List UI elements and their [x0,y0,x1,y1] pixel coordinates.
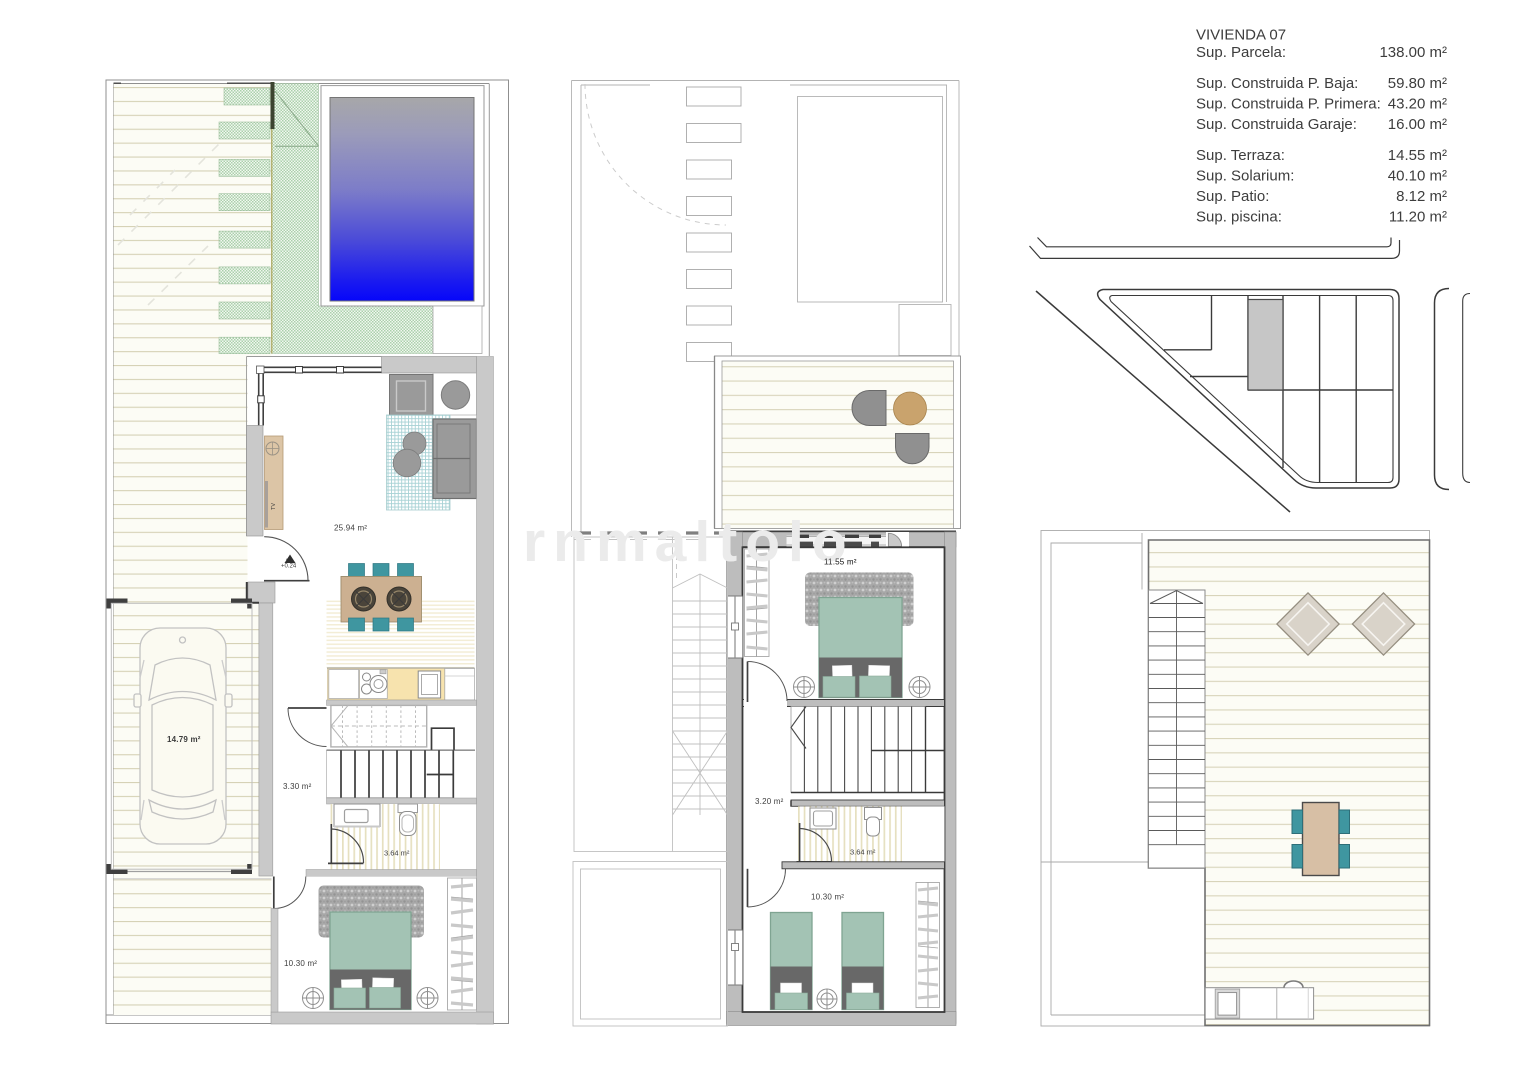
svg-text:10.30 m²: 10.30 m² [811,893,844,902]
svg-text:Sup. piscina:: Sup. piscina: [1196,209,1282,226]
svg-text:3.64 m²: 3.64 m² [850,848,876,857]
svg-text:3.30 m²: 3.30 m² [283,782,312,791]
svg-text:Sup. Solarium:: Sup. Solarium: [1196,168,1294,185]
svg-text:TV: TV [271,503,277,510]
svg-text:25.94 m²: 25.94 m² [334,524,367,533]
svg-text:14.55 m²: 14.55 m² [1388,147,1447,164]
svg-text:11.20 m²: 11.20 m² [1389,209,1447,226]
svg-text:40.10 m²: 40.10 m² [1388,168,1447,185]
svg-text:14.79 m²: 14.79 m² [167,735,201,744]
svg-text:10.30 m²: 10.30 m² [284,959,317,968]
svg-text:3.64 m²: 3.64 m² [384,849,410,858]
svg-text:8.12 m²: 8.12 m² [1396,188,1447,205]
svg-text:VIVIENDA 07: VIVIENDA 07 [1196,27,1286,44]
svg-text:Sup. Patio:: Sup. Patio: [1196,188,1269,205]
svg-text:59.80 m²: 59.80 m² [1388,75,1447,92]
svg-text:Sup. Construida Garaje:: Sup. Construida Garaje: [1196,116,1357,133]
svg-text:138.00 m²: 138.00 m² [1379,44,1447,61]
svg-text:Sup. Construida P. Baja:: Sup. Construida P. Baja: [1196,75,1358,92]
svg-text:Sup. Terraza:: Sup. Terraza: [1196,147,1285,164]
svg-text:Sup. Parcela:: Sup. Parcela: [1196,44,1286,61]
svg-text:16.00 m²: 16.00 m² [1388,116,1447,133]
svg-text:rnmaltolo: rnmaltolo [523,510,855,574]
svg-text:+0.24: +0.24 [281,564,297,570]
svg-text:11.55 m²: 11.55 m² [824,558,857,567]
svg-text:3.20 m²: 3.20 m² [755,797,784,806]
svg-text:Sup. Construida P. Primera:: Sup. Construida P. Primera: [1196,96,1381,113]
svg-text:43.20 m²: 43.20 m² [1388,96,1447,113]
